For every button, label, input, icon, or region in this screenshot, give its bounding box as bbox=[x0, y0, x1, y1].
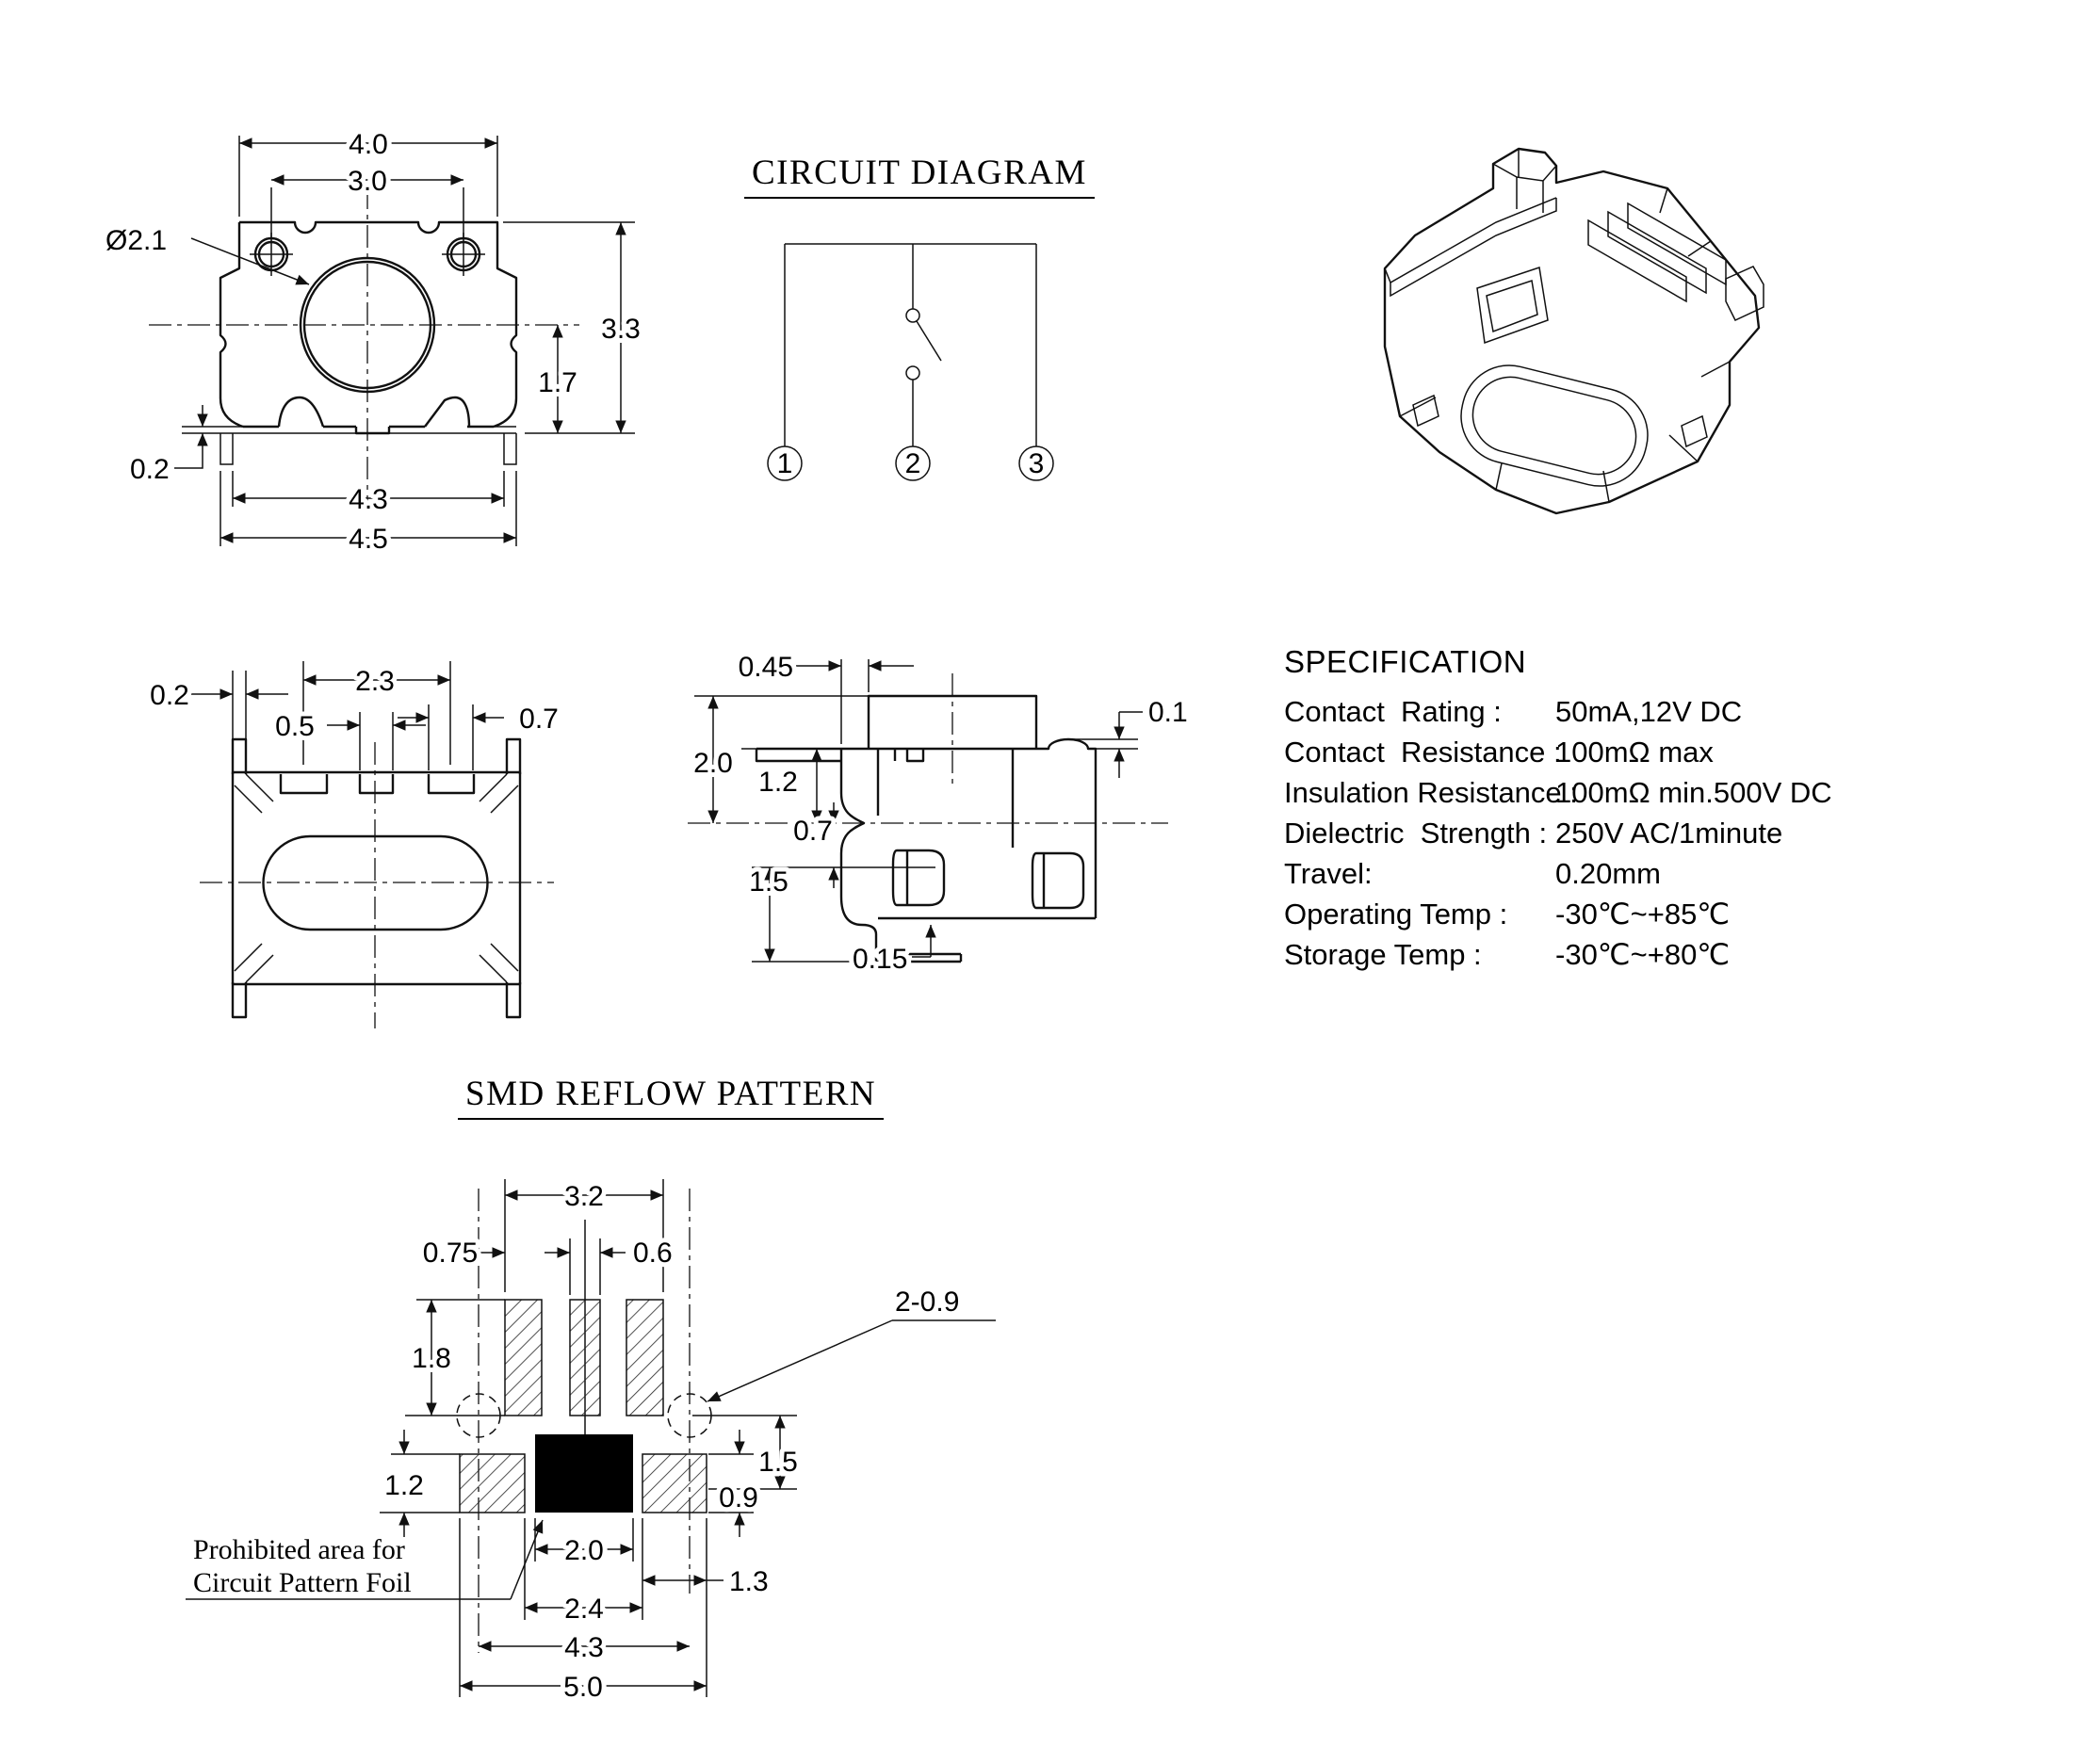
dim-label: 3.3 bbox=[601, 314, 641, 345]
spec-label: Contact Rating : bbox=[1284, 691, 1555, 732]
dim-label: 4.0 bbox=[349, 129, 388, 160]
dim-label: 0.1 bbox=[1148, 697, 1188, 728]
dim-label: 0.9 bbox=[719, 1482, 758, 1513]
spec-value: 250V AC/1minute bbox=[1555, 813, 1782, 853]
spec-row: Contact Resistance : 100mΩ max bbox=[1284, 732, 1972, 772]
terminal-numbers: 1 2 3 bbox=[777, 448, 1045, 479]
smd-reflow-title: SMD REFLOW PATTERN bbox=[458, 1074, 884, 1120]
dim-label: 0.7 bbox=[793, 816, 833, 847]
dim-label: 0.45 bbox=[739, 652, 793, 683]
isometric-view bbox=[1357, 94, 1865, 584]
dimension-labels: 0.2 2.3 0.5 0.7 bbox=[150, 666, 559, 742]
dim-label: 2.4 bbox=[564, 1594, 604, 1625]
dim-label: 1.8 bbox=[412, 1343, 451, 1374]
dimension-labels: 0.45 0.1 2.0 1.2 0.7 1.5 0.15 bbox=[693, 652, 1188, 975]
dim-label: 0.6 bbox=[633, 1238, 673, 1269]
dim-label: 3.2 bbox=[564, 1181, 604, 1212]
terminal-1: 1 bbox=[777, 448, 793, 479]
spec-value: -30℃~+85℃ bbox=[1555, 894, 1730, 934]
spec-label: Dielectric Strength : bbox=[1284, 813, 1555, 853]
spec-row: Storage Temp : -30℃~+80℃ bbox=[1284, 934, 1972, 975]
dim-label: 0.75 bbox=[423, 1238, 478, 1269]
circuit-diagram-title: CIRCUIT DIAGRAM bbox=[744, 153, 1095, 199]
spec-row: Operating Temp : -30℃~+85℃ bbox=[1284, 894, 1972, 934]
dim-label: 0.5 bbox=[275, 711, 315, 742]
dim-label: 4.3 bbox=[564, 1632, 604, 1663]
dim-label: 0.2 bbox=[150, 680, 189, 711]
dim-label: Ø2.1 bbox=[106, 225, 167, 256]
spec-label: Travel: bbox=[1284, 853, 1555, 894]
dimension-labels: 4.0 3.0 Ø2.1 3.3 1.7 0.2 4.3 4.5 bbox=[106, 129, 641, 555]
corner-braces bbox=[235, 774, 518, 982]
dimension-lines bbox=[694, 659, 1143, 962]
specification-panel: SPECIFICATION Contact Rating : 50mA,12V … bbox=[1284, 644, 1972, 975]
spec-title: SPECIFICATION bbox=[1284, 644, 1972, 680]
iso-body bbox=[1385, 149, 1764, 513]
circuit-wires bbox=[785, 244, 1036, 446]
spec-row: Contact Rating : 50mA,12V DC bbox=[1284, 691, 1972, 732]
dim-label: 2-0.9 bbox=[895, 1287, 959, 1318]
dim-label: 2.0 bbox=[693, 748, 733, 779]
spec-row: Insulation Resistance : 100mΩ min.500V D… bbox=[1284, 772, 1972, 813]
dim-label: 1.2 bbox=[384, 1470, 424, 1501]
prohibited-note-line2: Circuit Pattern Foil bbox=[193, 1567, 412, 1598]
dim-label: 1.7 bbox=[538, 367, 577, 398]
dimension-lines bbox=[190, 661, 504, 770]
dimension-lines bbox=[174, 136, 635, 546]
dim-label: 0.2 bbox=[130, 454, 170, 485]
top-view-drawing: 4.0 3.0 Ø2.1 3.3 1.7 0.2 4.3 4.5 bbox=[94, 57, 678, 584]
dim-label: 1.2 bbox=[758, 767, 798, 798]
smd-reflow-pattern: 3.2 0.75 0.6 2-0.9 1.8 1.2 1.5 0.9 2.0 1… bbox=[141, 1168, 1017, 1742]
spec-value: 100mΩ max bbox=[1555, 732, 1714, 772]
centerlines bbox=[149, 186, 579, 501]
datasheet-page: 4.0 3.0 Ø2.1 3.3 1.7 0.2 4.3 4.5 CIRCUIT… bbox=[0, 0, 2081, 1764]
switch-contacts bbox=[906, 309, 919, 380]
spec-value: 100mΩ min.500V DC bbox=[1555, 772, 1832, 813]
spec-row: Travel: 0.20mm bbox=[1284, 853, 1972, 894]
dim-label: 1.5 bbox=[749, 866, 789, 898]
spec-label: Operating Temp : bbox=[1284, 894, 1555, 934]
spec-value: -30℃~+80℃ bbox=[1555, 934, 1730, 975]
dim-label: 3.0 bbox=[348, 166, 387, 197]
spec-label: Storage Temp : bbox=[1284, 934, 1555, 975]
spec-label: Insulation Resistance : bbox=[1284, 772, 1555, 813]
circuit-diagram: 1 2 3 bbox=[749, 217, 1069, 509]
terminal-3: 3 bbox=[1029, 448, 1045, 479]
prohibited-note-line1: Prohibited area for bbox=[193, 1534, 405, 1565]
dim-label: 0.15 bbox=[853, 944, 907, 975]
dim-label: 0.7 bbox=[519, 704, 559, 735]
spec-label: Contact Resistance : bbox=[1284, 732, 1555, 772]
centerlines bbox=[200, 742, 554, 1028]
dim-label: 4.5 bbox=[349, 524, 388, 555]
dim-label: 2.3 bbox=[355, 666, 395, 697]
dim-label: 2.0 bbox=[564, 1535, 604, 1566]
spec-row: Dielectric Strength : 250V AC/1minute bbox=[1284, 813, 1972, 853]
bottom-view-drawing: 0.2 2.3 0.5 0.7 bbox=[132, 622, 622, 1045]
spec-value: 0.20mm bbox=[1555, 853, 1661, 894]
dim-label: 1.3 bbox=[729, 1566, 769, 1597]
dim-label: 1.5 bbox=[758, 1447, 798, 1478]
prohibited-area bbox=[535, 1434, 633, 1513]
dim-label: 5.0 bbox=[563, 1672, 603, 1703]
dim-label: 4.3 bbox=[349, 484, 388, 515]
terminal-2: 2 bbox=[905, 448, 921, 479]
spec-value: 50mA,12V DC bbox=[1555, 691, 1742, 732]
side-view-drawing: 0.45 0.1 2.0 1.2 0.7 1.5 0.15 bbox=[593, 593, 1206, 1045]
bottom-body-outline bbox=[233, 739, 520, 1017]
